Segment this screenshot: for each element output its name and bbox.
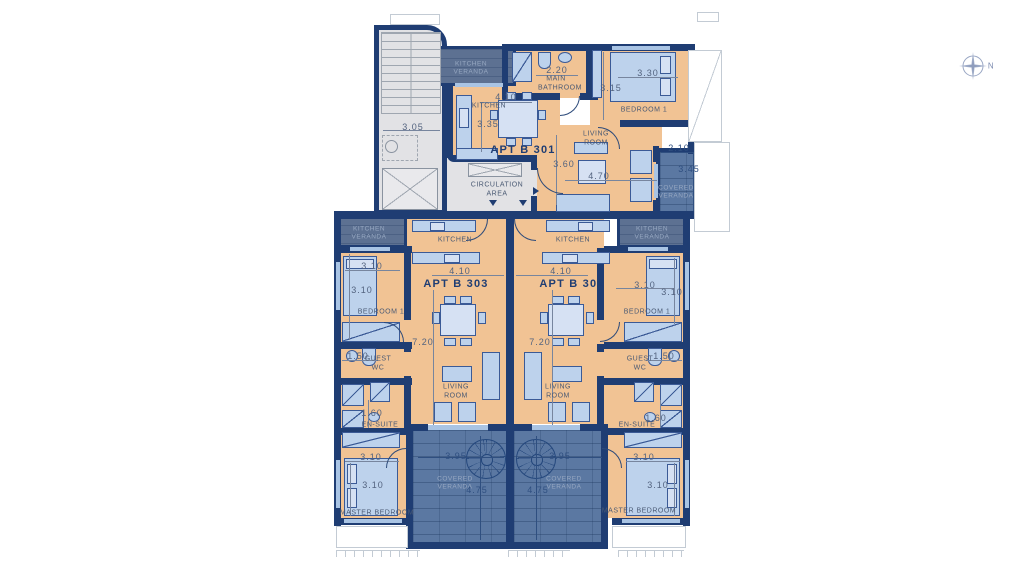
b301-bedroom1-dim-height: 3.15 — [600, 83, 622, 93]
dimension-line — [350, 463, 351, 516]
dining-table — [548, 304, 584, 336]
balcony-outline — [612, 526, 686, 548]
b302-bedroom1-dim-width: 3.10 — [634, 280, 656, 290]
chair — [460, 338, 472, 346]
b303-bedroom1-label: BEDROOM 1 — [358, 309, 405, 316]
wardrobe — [624, 322, 682, 342]
b303-veranda-dim-width: 3.95 — [445, 451, 467, 461]
b302-master-dim-height: 3.10 — [647, 480, 669, 490]
hob — [444, 254, 460, 263]
chair — [568, 338, 580, 346]
wall — [620, 120, 694, 127]
spiral-staircase — [466, 439, 506, 479]
wall — [335, 211, 466, 219]
b302-apartment-label: APT B 302 — [539, 278, 604, 290]
terrace-edge — [618, 550, 684, 557]
sliding-door — [428, 425, 488, 430]
b301-apartment-label: APT B 301 — [490, 144, 555, 156]
shower — [370, 382, 390, 402]
b302-kitchen-veranda-label: KITCHEN VERANDA — [629, 226, 675, 243]
roof-outline — [390, 14, 440, 25]
b301-kitchen-label: KITCHEN — [472, 103, 506, 110]
armchair — [630, 150, 652, 174]
chair — [552, 296, 564, 304]
chair — [522, 92, 532, 100]
hob — [562, 254, 578, 263]
dining-table — [440, 304, 476, 336]
b302-bedroom1-dim-height: 3.10 — [661, 287, 683, 297]
b301-veranda-dim-width: 2.10 — [668, 143, 690, 153]
window — [685, 460, 689, 508]
window — [336, 460, 340, 508]
b303-master-dim-height: 3.10 — [362, 480, 384, 490]
wall — [514, 542, 608, 549]
shower — [634, 382, 654, 402]
kitchen-sink — [430, 222, 445, 231]
kitchen-sink — [578, 222, 593, 231]
b302-master-dim-width: 3.10 — [633, 452, 655, 462]
b301-veranda-dim-height: 3.45 — [678, 164, 700, 174]
b303-master-dim-width: 3.10 — [360, 452, 382, 462]
b302-kitchen-label: KITCHEN — [556, 237, 590, 244]
armchair — [434, 402, 452, 422]
pillow — [667, 488, 677, 508]
dimension-line — [565, 180, 657, 181]
sliding-door — [622, 519, 680, 523]
accessible-wc-outline — [382, 135, 418, 161]
armchair — [630, 178, 652, 202]
b303-dim-height: 7.20 — [412, 337, 434, 347]
sliding-door — [532, 425, 580, 430]
b301-veranda-label: COVERED VERANDA — [653, 185, 699, 202]
chair — [538, 110, 546, 120]
b302-veranda-dim-height: 4.75 — [527, 485, 549, 495]
b301-kitchen-veranda-label: KITCHEN VERANDA — [448, 61, 494, 78]
chair — [552, 338, 564, 346]
b303-ensuite-dim: 1.60 — [361, 408, 383, 418]
pillow — [347, 464, 357, 484]
wall — [447, 84, 453, 158]
dimension-line — [349, 254, 350, 340]
window — [350, 247, 390, 251]
terrace-edge — [508, 550, 570, 557]
wardrobe — [342, 432, 400, 448]
pillow — [660, 78, 671, 96]
pillow — [660, 56, 671, 74]
dimension-line — [552, 290, 553, 425]
chair — [478, 312, 486, 324]
b303-guestwc-label: GUEST WC — [360, 355, 396, 373]
wall — [488, 424, 506, 431]
b302-bedroom1-label: BEDROOM 1 — [624, 309, 671, 316]
circulation-area-label: CIRCULATION AREA — [470, 181, 524, 199]
roof-outline — [697, 12, 719, 22]
shower — [342, 384, 364, 406]
wall — [406, 542, 514, 549]
sliding-door — [344, 519, 402, 523]
b301-bedroom1-dim-width: 3.30 — [637, 68, 659, 78]
compass-rose-icon — [956, 49, 990, 83]
b303-kitchen-veranda-label: KITCHEN VERANDA — [346, 226, 392, 243]
elevator — [382, 168, 438, 210]
b301-bedroom1-label: BEDROOM 1 — [621, 107, 668, 114]
pillow — [649, 259, 677, 269]
roof-outline — [688, 50, 722, 142]
window — [455, 83, 503, 87]
floor-plan: KITCHEN VERANDA2.20MAIN BATHROOM3.303.15… — [0, 0, 1024, 576]
core-dim-width: 3.05 — [402, 122, 424, 132]
tv-unit — [442, 366, 472, 382]
b303-master-label: MASTER BEDROOM — [340, 510, 414, 517]
shower — [512, 52, 532, 82]
armchair — [458, 402, 476, 422]
tv-unit — [552, 366, 582, 382]
wall — [536, 211, 690, 219]
chair — [586, 312, 594, 324]
b301-kitchen-dim-height: 3.35 — [477, 119, 499, 129]
b303-bedroom1-dim-height: 3.10 — [351, 285, 373, 295]
b301-kitchen-dim-width: 4.10 — [495, 92, 517, 102]
window — [336, 262, 340, 310]
wardrobe — [624, 432, 682, 448]
b303-bedroom1-dim-width: 3.10 — [361, 261, 383, 271]
b301-bathroom-dim-width: 2.20 — [546, 65, 568, 75]
chair — [444, 296, 456, 304]
sofa — [556, 194, 610, 212]
b301-living-dim-width: 4.70 — [588, 171, 610, 181]
b302-guestwc-dim: 1.50 — [653, 351, 675, 361]
chair — [444, 338, 456, 346]
balcony-outline — [694, 142, 730, 232]
b302-ensuite-dim: 1.60 — [645, 413, 667, 423]
b302-living-label: LIVING ROOM — [540, 383, 576, 401]
hob — [459, 108, 469, 128]
armchair — [548, 402, 566, 422]
door-arc — [560, 96, 580, 116]
wall — [514, 424, 532, 431]
compass-north-label: N — [988, 62, 994, 71]
b301-living-label: LIVING ROOM — [578, 130, 614, 148]
wall — [404, 248, 411, 320]
b302-dim-height: 7.20 — [529, 337, 551, 347]
b301-bathroom-label: MAIN BATHROOM — [538, 75, 574, 93]
b302-dim-width: 4.10 — [550, 266, 572, 276]
window — [628, 247, 668, 251]
b303-ensuite-label: EN-SUITE — [362, 422, 399, 429]
entry-marker-icon — [533, 187, 539, 195]
sofa — [482, 352, 500, 400]
void-hatch — [468, 163, 522, 177]
staircase — [381, 32, 441, 114]
wall — [597, 376, 604, 430]
chair — [568, 296, 580, 304]
b302-master-label: MASTER BEDROOM — [602, 508, 676, 515]
b303-dim-width: 4.10 — [449, 266, 471, 276]
wall — [653, 146, 659, 162]
b303-apartment-label: APT B 303 — [423, 278, 488, 290]
wall — [604, 342, 690, 349]
sink — [558, 52, 572, 63]
b302-veranda-dim-width: 3.95 — [549, 451, 571, 461]
terrace-edge — [336, 550, 420, 557]
armchair — [572, 402, 590, 422]
b303-living-label: LIVING ROOM — [438, 383, 474, 401]
shower — [660, 384, 682, 406]
window — [685, 262, 689, 310]
wall — [488, 211, 506, 219]
b303-kitchen-label: KITCHEN — [438, 237, 472, 244]
chair — [460, 296, 472, 304]
window — [612, 46, 670, 50]
entry-marker-icon — [489, 200, 497, 206]
wall — [506, 211, 514, 549]
b303-veranda-dim-height: 4.75 — [466, 485, 488, 495]
b301-living-dim-height: 3.60 — [553, 159, 575, 169]
pillow — [347, 488, 357, 508]
entry-marker-icon — [519, 200, 527, 206]
chair — [540, 312, 548, 324]
balcony-outline — [336, 526, 408, 548]
wall — [597, 344, 604, 352]
dimension-line — [433, 290, 434, 425]
